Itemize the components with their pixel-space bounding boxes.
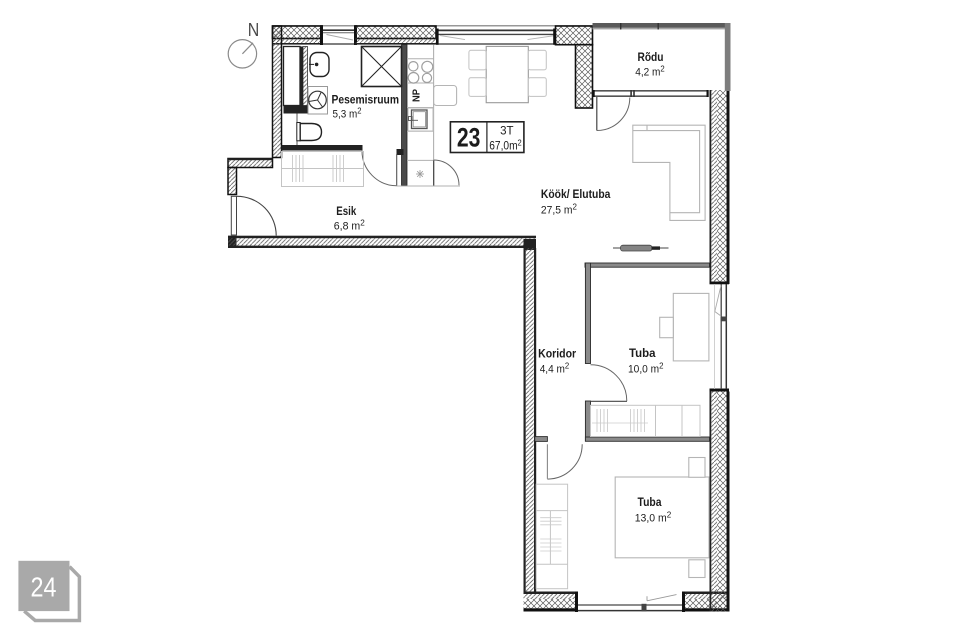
svg-text:24: 24 bbox=[31, 572, 57, 603]
svg-text:67,0m2: 67,0m2 bbox=[489, 137, 522, 152]
svg-text:Esik: Esik bbox=[336, 206, 356, 218]
svg-text:27,5 m2: 27,5 m2 bbox=[541, 202, 577, 217]
svg-text:Tuba: Tuba bbox=[638, 497, 663, 509]
svg-text:Rõdu: Rõdu bbox=[638, 52, 664, 64]
svg-text:N: N bbox=[248, 20, 259, 40]
svg-text:NP: NP bbox=[411, 89, 423, 102]
svg-text:23: 23 bbox=[457, 123, 481, 153]
svg-text:Köök/ Elutuba: Köök/ Elutuba bbox=[541, 189, 611, 201]
svg-text:10,0 m2: 10,0 m2 bbox=[628, 361, 664, 376]
svg-text:13,0 m2: 13,0 m2 bbox=[635, 510, 672, 525]
svg-text:Pesemisruum: Pesemisruum bbox=[332, 95, 400, 107]
svg-text:Koridor: Koridor bbox=[538, 349, 576, 361]
svg-text:Tuba: Tuba bbox=[629, 348, 656, 360]
svg-text:3T: 3T bbox=[500, 125, 513, 137]
